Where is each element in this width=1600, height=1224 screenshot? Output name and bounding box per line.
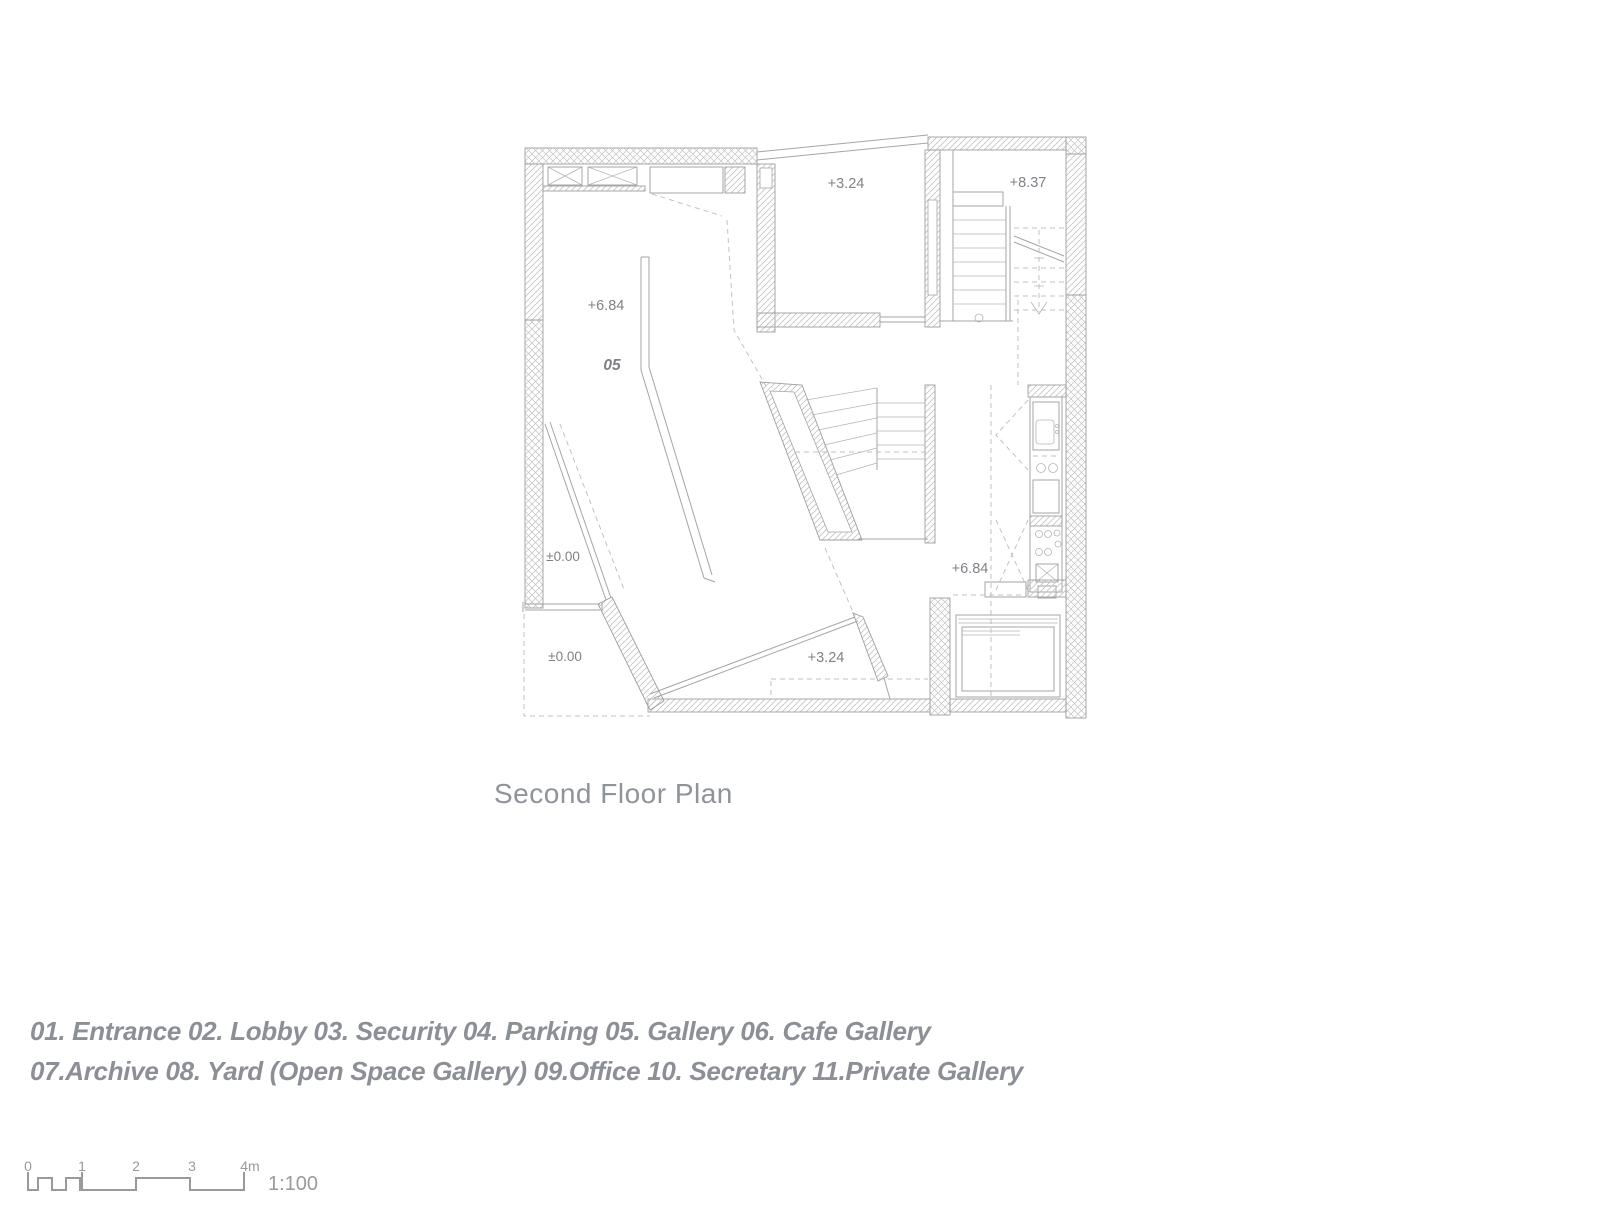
burner-icon	[1037, 464, 1046, 473]
label-ground-level-upper: ±0.00	[546, 549, 580, 564]
label-right-hall-level: +6.84	[952, 561, 989, 577]
scale-ratio: 1:100	[268, 1173, 318, 1195]
scale-tick-0: 0	[24, 1158, 32, 1174]
label-bridge-level: +3.24	[808, 650, 845, 666]
scale-bar: 0 1 2 3 4m 1:100	[24, 1158, 318, 1195]
kitchen-counter	[991, 385, 1066, 697]
label-gallery-room-number: 05	[603, 357, 621, 374]
sink-icon	[1036, 420, 1054, 444]
central-stair	[760, 382, 935, 612]
scale-tick-4m: 4m	[240, 1158, 259, 1174]
label-upper-room-level: +3.24	[828, 176, 865, 192]
upper-void-room	[652, 135, 940, 386]
closet-row	[543, 167, 745, 193]
label-gallery-level: +6.84	[588, 298, 625, 314]
label-stair-level: +8.37	[1010, 175, 1047, 191]
drawing-sheet: +3.24 +8.37 +6.84 05 ±0.00 ±0.00 +6.84 +…	[0, 0, 1600, 1224]
burner-icon	[1049, 464, 1058, 473]
room-legend-line-2: 07.Archive 08. Yard (Open Space Gallery)…	[30, 1056, 1023, 1087]
scale-tick-2: 2	[132, 1158, 140, 1174]
scale-tick-1: 1	[78, 1158, 86, 1174]
drawing-title: Second Floor Plan	[494, 778, 733, 810]
scale-tick-3: 3	[188, 1158, 196, 1174]
sloped-bridge	[650, 613, 928, 699]
label-ground-level-lower: ±0.00	[548, 649, 582, 664]
room-legend-line-1: 01. Entrance 02. Lobby 03. Security 04. …	[30, 1016, 931, 1047]
